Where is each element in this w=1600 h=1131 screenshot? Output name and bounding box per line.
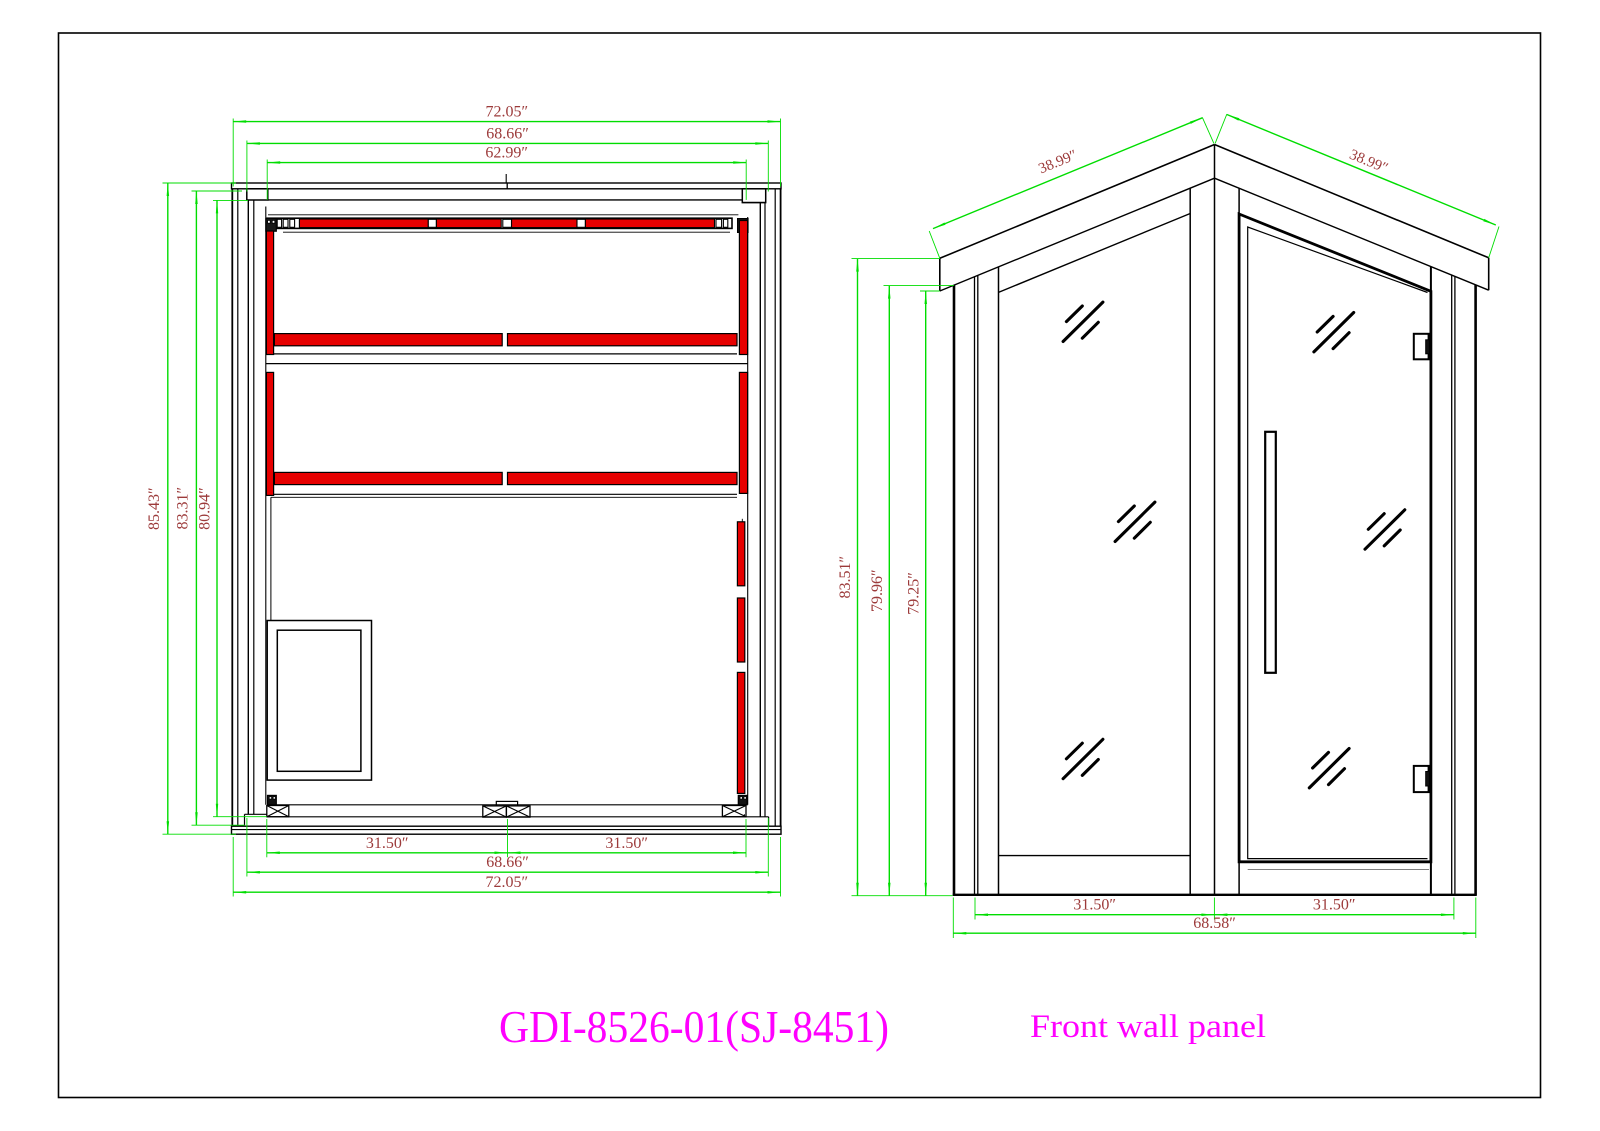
svg-text:68.66″: 68.66″: [486, 125, 529, 142]
svg-text:GDI-8526-01(SJ-8451): GDI-8526-01(SJ-8451): [499, 1001, 889, 1052]
svg-text:83.31″: 83.31″: [175, 487, 192, 530]
svg-text:80.94″: 80.94″: [196, 487, 213, 530]
svg-text:79.25″: 79.25″: [905, 572, 922, 615]
svg-text:62.99″: 62.99″: [485, 145, 528, 162]
svg-text:31.50″: 31.50″: [605, 835, 648, 852]
svg-text:Front wall panel: Front wall panel: [1030, 1009, 1266, 1045]
svg-text:72.05″: 72.05″: [486, 104, 529, 121]
svg-text:72.05″: 72.05″: [486, 874, 529, 891]
svg-text:31.50″: 31.50″: [366, 835, 409, 852]
svg-text:85.43″: 85.43″: [146, 487, 163, 530]
svg-text:68.58″: 68.58″: [1193, 915, 1236, 932]
svg-text:31.50″: 31.50″: [1313, 897, 1356, 914]
svg-text:31.50″: 31.50″: [1073, 897, 1116, 914]
svg-text:83.51″: 83.51″: [837, 556, 854, 599]
svg-text:79.96″: 79.96″: [869, 569, 886, 612]
svg-text:68.66″: 68.66″: [486, 854, 529, 871]
